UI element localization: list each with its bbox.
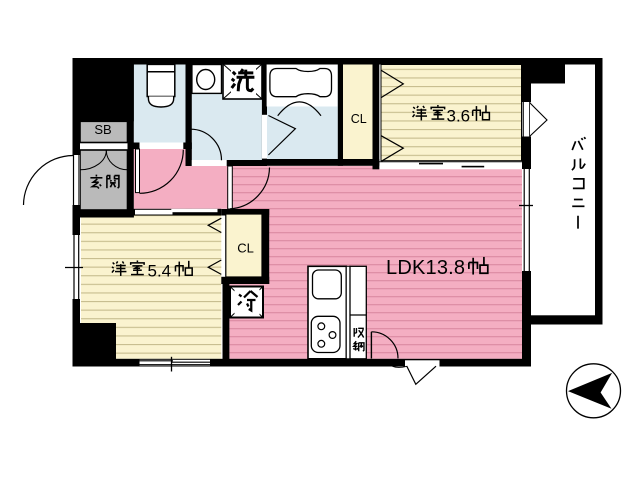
svg-text:CL: CL: [237, 241, 254, 256]
svg-text:3.6: 3.6: [447, 106, 471, 125]
svg-text:CL: CL: [351, 112, 367, 126]
svg-text:5.4: 5.4: [148, 262, 172, 281]
svg-text:LDK13.8: LDK13.8: [386, 257, 465, 279]
svg-text:SB: SB: [94, 122, 111, 137]
